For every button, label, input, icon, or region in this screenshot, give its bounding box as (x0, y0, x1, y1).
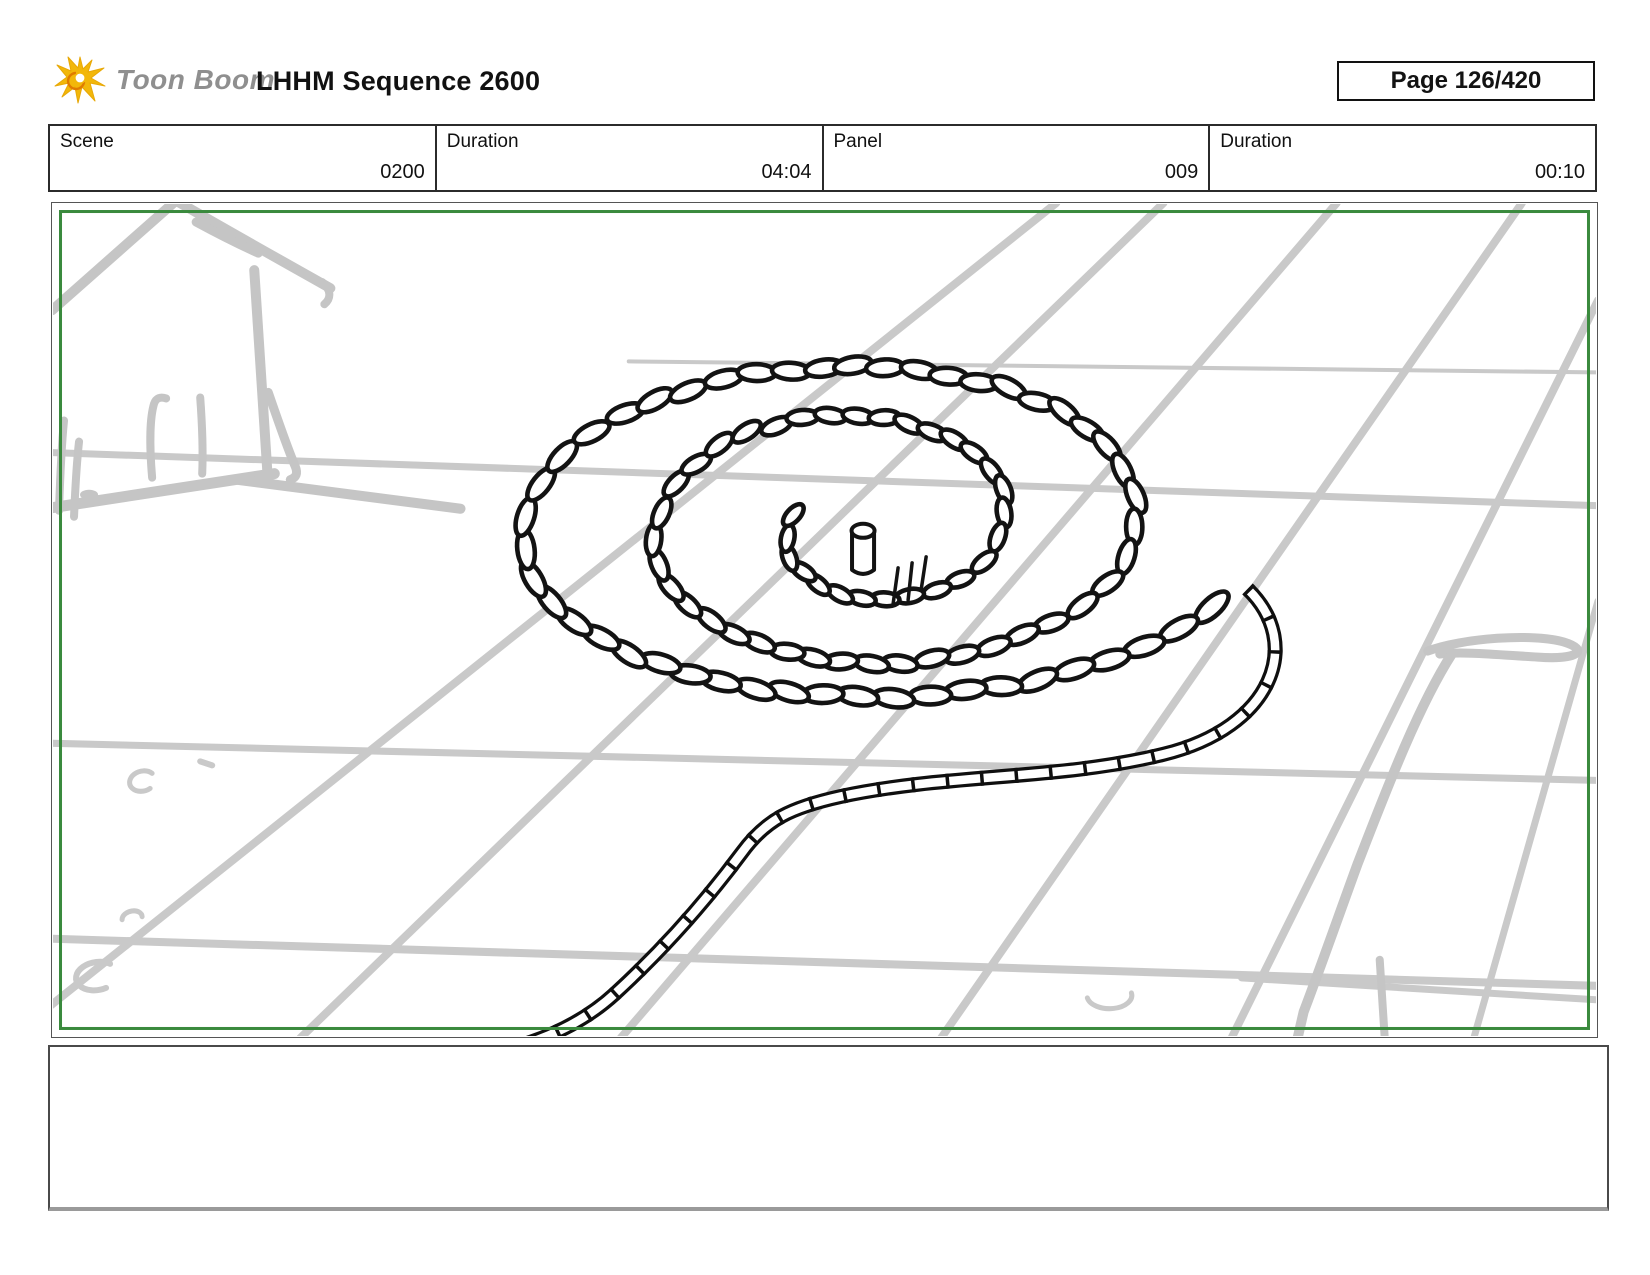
storyboard-panel-frame (51, 202, 1598, 1038)
notes-panel (48, 1045, 1609, 1211)
house-sketch (52, 203, 461, 517)
page-title: LHHM Sequence 2600 (256, 66, 540, 97)
meta-cell-panel-duration: Duration 00:10 (1208, 126, 1595, 190)
pebble-marks (76, 761, 1132, 1008)
toonboom-logo-icon (54, 56, 106, 104)
brand-name: Toon Boom (116, 64, 275, 96)
storyboard-page: Toon Boom LHHM Sequence 2600 Page 126/42… (0, 0, 1650, 1275)
meta-value: 0200 (60, 161, 425, 184)
meta-value: 04:04 (447, 161, 812, 184)
meta-label: Panel (834, 131, 1199, 153)
floor-grid-sketch (52, 203, 1597, 1037)
meta-label: Scene (60, 131, 425, 153)
page-number-badge: Page 126/420 (1337, 61, 1595, 101)
meta-value: 009 (834, 161, 1199, 184)
meta-value: 00:10 (1220, 161, 1585, 184)
meta-cell-scene: Scene 0200 (48, 126, 435, 190)
sketch-blob (80, 490, 98, 500)
meta-label: Duration (1220, 131, 1585, 153)
toonboom-brand: Toon Boom (54, 56, 275, 104)
meta-cell-panel: Panel 009 (822, 126, 1209, 190)
meta-label: Duration (447, 131, 812, 153)
storyboard-drawing (52, 203, 1597, 1037)
metadata-row: Scene 0200 Duration 04:04 Panel 009 Dura… (48, 124, 1597, 192)
meta-cell-scene-duration: Duration 04:04 (435, 126, 822, 190)
panel-green-border (61, 212, 1589, 1029)
